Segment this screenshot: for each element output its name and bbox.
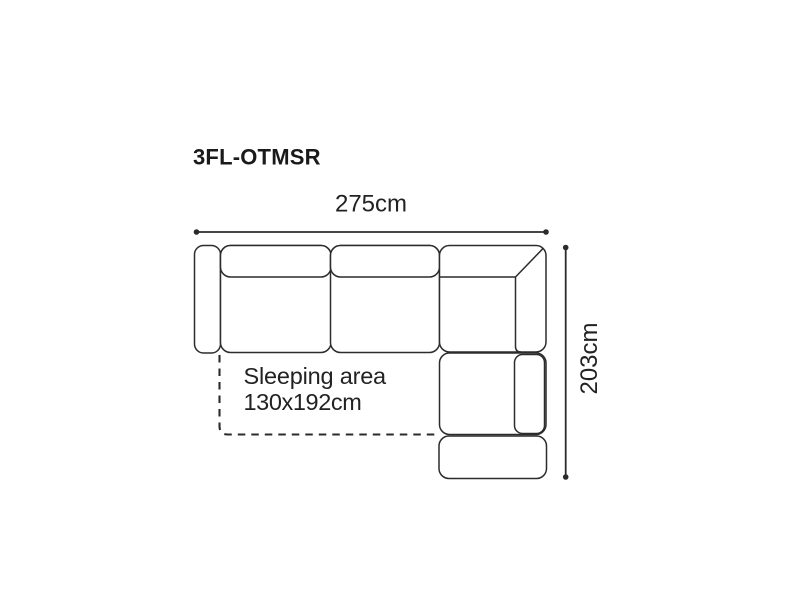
svg-text:275cm: 275cm xyxy=(335,191,407,218)
svg-text:3FL-OTMSR: 3FL-OTMSR xyxy=(193,145,321,170)
svg-text:130x192cm: 130x192cm xyxy=(244,389,362,415)
svg-text:203cm: 203cm xyxy=(576,322,603,394)
svg-text:Sleeping area: Sleeping area xyxy=(244,363,388,389)
